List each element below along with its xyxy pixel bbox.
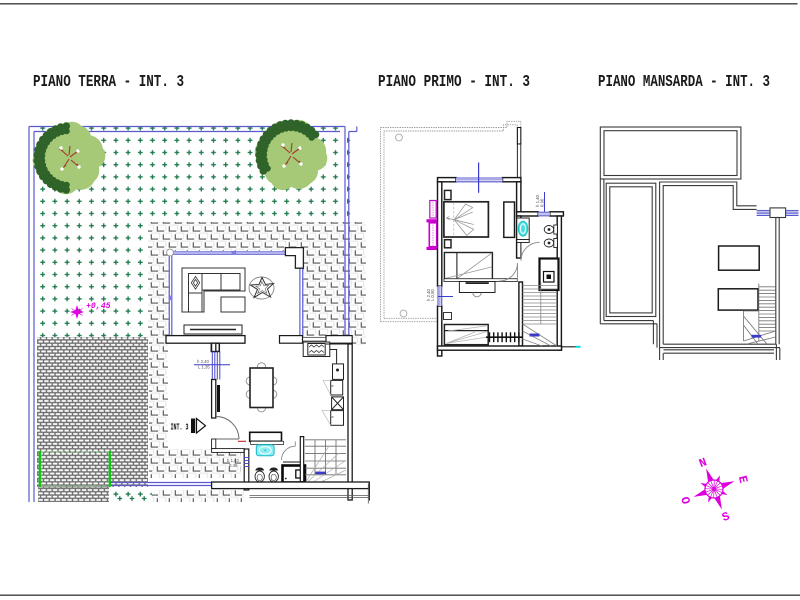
svg-text:PIANO TERRA - INT. 3: PIANO TERRA - INT. 3 — [33, 73, 184, 91]
svg-text:h 2,40: h 2,40 — [197, 359, 210, 364]
svg-text:+0,45: +0,45 — [86, 302, 111, 311]
svg-text:PIANO MANSARDA - INT. 3: PIANO MANSARDA - INT. 3 — [598, 73, 770, 91]
svg-text:PIANO PRIMO - INT. 3: PIANO PRIMO - INT. 3 — [378, 73, 530, 91]
svg-text:0,45: 0,45 — [229, 463, 238, 468]
svg-text:0,90: 0,90 — [540, 198, 545, 207]
svg-text:INT. 3: INT. 3 — [171, 423, 189, 433]
svg-text:L 0,90: L 0,90 — [430, 289, 435, 301]
